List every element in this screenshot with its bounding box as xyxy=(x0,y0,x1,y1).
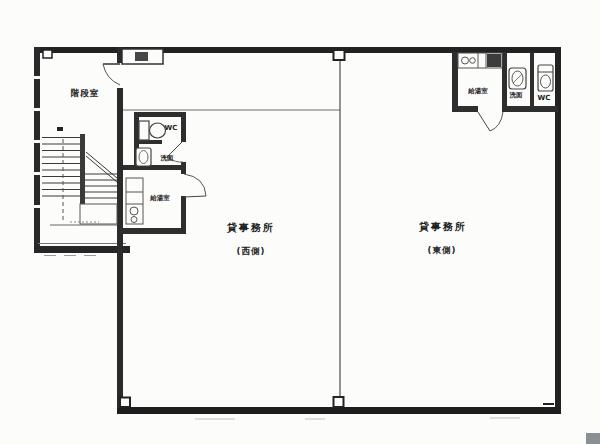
outer-walls xyxy=(34,47,561,414)
room-label-wc-west: WC xyxy=(165,125,178,132)
room-label-washroom-west: 洗面 xyxy=(161,155,174,162)
door-swing-kitchenette-west xyxy=(184,174,206,197)
sink-icon-east xyxy=(509,68,526,89)
floor-plan: 階段室 WC 洗面 給湯室 貸事務所 (西側) 貸事務所 (東側) 給湯室 洗面… xyxy=(0,0,600,444)
room-label-office-east-side: (東側) xyxy=(428,246,457,255)
pipe-space-niche xyxy=(122,49,163,64)
kitchen-counter-west xyxy=(126,178,143,224)
stairs xyxy=(42,127,117,225)
floor-plan-drawing xyxy=(0,0,600,444)
room-label-office-east: 貸事務所 xyxy=(419,222,467,232)
sink-icon-west xyxy=(136,148,151,166)
room-label-washroom-east: 洗面 xyxy=(510,92,523,99)
room-label-wc-east: WC xyxy=(538,95,551,102)
window-marks xyxy=(34,76,96,256)
room-label-office-west-side: (西側) xyxy=(237,247,266,256)
room-label-kitchenette-west: 給湯室 xyxy=(150,195,170,202)
room-label-stairwell: 階段室 xyxy=(71,89,100,98)
toilet-icon-east xyxy=(538,65,553,91)
toilet-icon-west xyxy=(139,121,166,140)
room-label-kitchenette-east: 給湯室 xyxy=(468,88,488,95)
door-swing-stairwell xyxy=(103,64,120,85)
scan-artifact xyxy=(586,433,600,444)
room-label-office-west: 貸事務所 xyxy=(227,223,275,233)
door-swing-kitchenette-east xyxy=(478,112,503,131)
scan-smudges xyxy=(195,418,520,419)
kitchen-counter-east xyxy=(458,53,502,68)
